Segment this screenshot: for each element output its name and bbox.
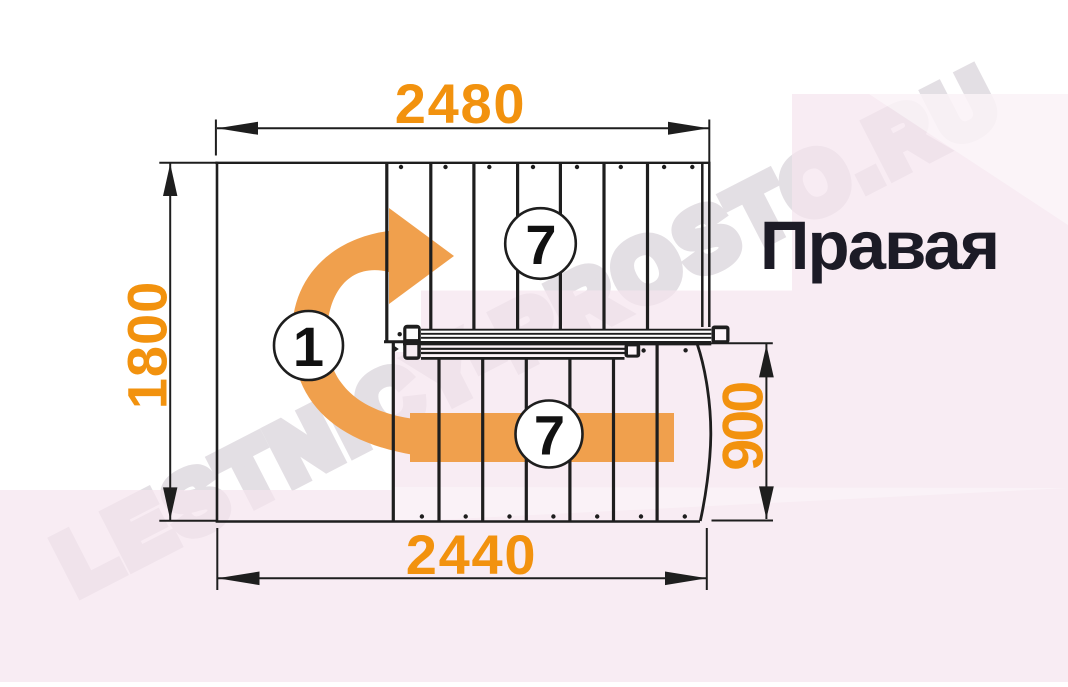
svg-text:1: 1 (293, 315, 324, 378)
svg-text:7: 7 (525, 213, 556, 276)
svg-text:900: 900 (712, 383, 776, 471)
svg-text:7: 7 (534, 403, 565, 466)
svg-text:2440: 2440 (406, 523, 537, 586)
svg-text:1800: 1800 (116, 281, 179, 410)
svg-text:Правая: Правая (760, 207, 998, 284)
svg-text:2480: 2480 (395, 72, 526, 135)
